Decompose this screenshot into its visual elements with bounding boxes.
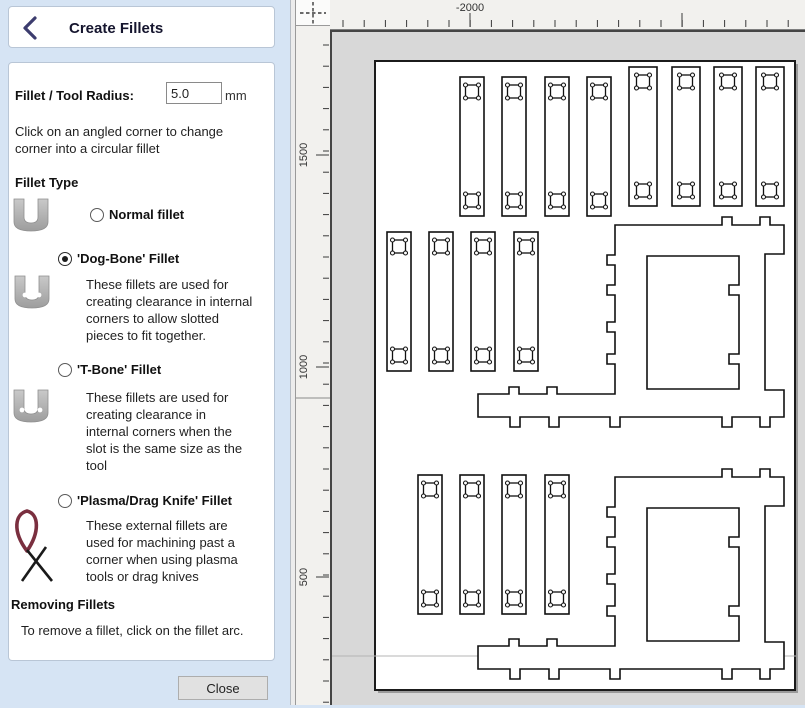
removing-fillets-heading: Removing Fillets xyxy=(11,597,115,612)
create-fillets-panel: Create Fillets Fillet / Tool Radius: mm … xyxy=(0,0,290,705)
u-slot-icon xyxy=(11,197,53,235)
svg-text:-2000: -2000 xyxy=(456,2,484,14)
svg-text:1500: 1500 xyxy=(298,143,310,167)
horizontal-ruler: -2000 xyxy=(330,0,805,30)
dog-bone-description: These fillets are used for creating clea… xyxy=(86,276,266,344)
crosshair-icon xyxy=(296,0,330,26)
option-dog-bone-fillet[interactable]: 'Dog-Bone' Fillet xyxy=(58,251,179,266)
removing-fillets-text: To remove a fillet, click on the fillet … xyxy=(21,622,244,639)
svg-text:1000: 1000 xyxy=(298,355,310,379)
intro-text: Click on an angled corner to change corn… xyxy=(15,123,223,157)
panel-title: Create Fillets xyxy=(69,20,163,37)
app-window: Create Fillets Fillet / Tool Radius: mm … xyxy=(0,0,805,705)
u-slot-dogbone-icon xyxy=(12,274,54,312)
t-bone-description: These fillets are used for creating clea… xyxy=(86,389,266,474)
radius-label: Fillet / Tool Radius: xyxy=(15,88,134,103)
plasma-description: These external fillets are used for mach… xyxy=(86,517,266,585)
close-button[interactable]: Close xyxy=(178,676,268,700)
normal-fillet-radio[interactable] xyxy=(90,208,104,222)
fillet-type-heading: Fillet Type xyxy=(15,175,78,190)
vertical-ruler: 15001000500 xyxy=(296,26,330,705)
drawing-canvas[interactable] xyxy=(330,30,805,705)
radius-unit-label: mm xyxy=(225,88,247,103)
drawing-svg[interactable] xyxy=(332,32,805,705)
dog-bone-fillet-radio[interactable] xyxy=(58,252,72,266)
u-slot-tbone-icon xyxy=(11,388,53,426)
plasma-knife-icon xyxy=(9,506,57,584)
dog-bone-fillet-label: 'Dog-Bone' Fillet xyxy=(77,251,179,266)
back-chevron-icon xyxy=(21,15,41,41)
ruler-origin-box xyxy=(296,0,330,26)
svg-text:500: 500 xyxy=(298,568,310,586)
radius-input[interactable] xyxy=(166,82,222,104)
option-normal-fillet[interactable]: Normal fillet xyxy=(90,207,184,222)
plasma-drag-knife-label: 'Plasma/Drag Knife' Fillet xyxy=(77,493,232,508)
t-bone-fillet-label: 'T-Bone' Fillet xyxy=(77,362,161,377)
panel-body: Fillet / Tool Radius: mm Click on an ang… xyxy=(8,62,275,661)
t-bone-fillet-radio[interactable] xyxy=(58,363,72,377)
plasma-drag-knife-radio[interactable] xyxy=(58,494,72,508)
panel-header: Create Fillets xyxy=(8,6,275,48)
option-plasma-drag-knife-fillet[interactable]: 'Plasma/Drag Knife' Fillet xyxy=(58,493,232,508)
back-button[interactable] xyxy=(21,15,41,41)
option-t-bone-fillet[interactable]: 'T-Bone' Fillet xyxy=(58,362,161,377)
normal-fillet-label: Normal fillet xyxy=(109,207,184,222)
